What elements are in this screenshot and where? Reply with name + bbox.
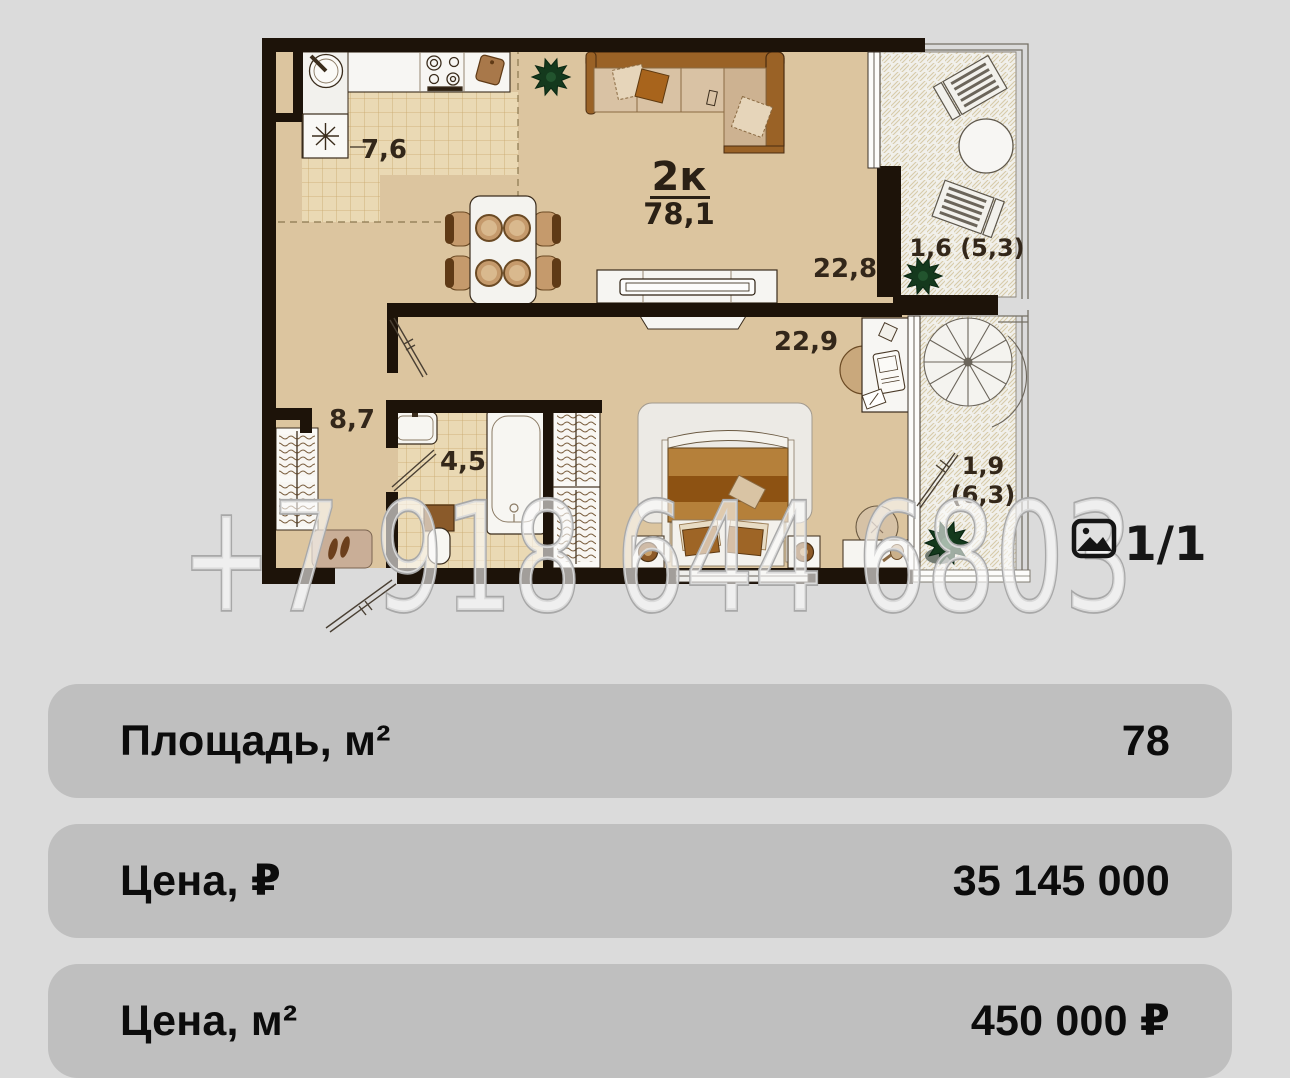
- dining-table: [470, 196, 536, 304]
- washing-machine: [303, 114, 348, 158]
- info-row-price-per-m2: Цена, м² 450 000 ₽: [48, 964, 1232, 1078]
- bedroom-area-label: 22,9: [774, 327, 838, 357]
- kitchen-area-label: 7,6: [361, 135, 407, 165]
- area-value: 78: [1122, 717, 1170, 766]
- living-area-label: 22,8: [813, 254, 877, 284]
- hall-area-label: 8,7: [329, 405, 375, 435]
- tv-console: [597, 270, 777, 303]
- listing-page: { "watermark": "+7 918 644 6803", "galle…: [0, 0, 1290, 1076]
- tv: [620, 279, 755, 295]
- area-label: Площадь, м²: [120, 717, 391, 766]
- info-row-area: Площадь, м² 78: [48, 684, 1232, 798]
- bathroom-sink: [393, 408, 437, 444]
- living-balcony-window: [868, 52, 880, 168]
- phone-watermark: +7 918 644 6803: [181, 472, 1133, 646]
- apartment-type-label: 2к: [652, 154, 707, 200]
- price-label: Цена, ₽: [120, 856, 281, 906]
- balcony-table: [959, 119, 1013, 173]
- sofa-pillow: [635, 69, 669, 103]
- price-per-m2-label: Цена, м²: [120, 997, 297, 1046]
- balcony-top-area-label: 1,6 (5,3): [909, 234, 1024, 262]
- price-per-m2-value: 450 000 ₽: [971, 996, 1170, 1046]
- total-area-label: 78,1: [643, 197, 715, 231]
- photo-counter-text: 1/1: [1124, 517, 1207, 572]
- info-row-price: Цена, ₽ 35 145 000: [48, 824, 1232, 938]
- price-value: 35 145 000: [953, 857, 1170, 906]
- floor-plan-image: 2к 78,1 7,6 22,8 22,9 8,7 4,5 1,6 (5,3) …: [0, 0, 1290, 660]
- bedroom-tv: [640, 316, 746, 329]
